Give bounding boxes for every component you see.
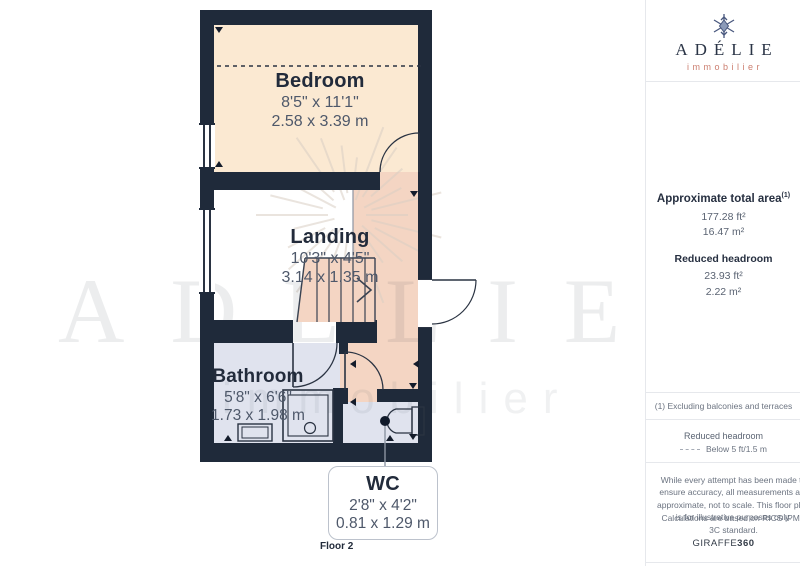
area-summary: Approximate total area(1) 177.28 ft² 16.… — [646, 192, 800, 298]
brand-name: ADÉLIE — [653, 40, 800, 60]
plan-marker — [224, 431, 232, 441]
giraffe360-logo: GIRAFFE360 — [646, 538, 800, 549]
balcony-footnote: (1) Excluding balconies and terraces — [646, 401, 800, 411]
sidebar-divider — [646, 562, 800, 563]
wc-dim-ft: 2'8" x 4'2" — [329, 498, 437, 514]
total-area-ft: 177.28 ft² — [646, 212, 800, 223]
landing-dim-ft: 10'3" x 4'5" — [240, 251, 420, 268]
wc-dim-m: 0.81 x 1.29 m — [329, 516, 437, 532]
reduced-area-ft: 23.93 ft² — [646, 271, 800, 282]
landing-name: Landing — [240, 226, 420, 249]
standard-text: Calculations are based on RICS IPMS 3C s… — [646, 512, 800, 537]
legend-entry: Below 5 ft/1.5 m — [646, 444, 800, 454]
sidebar-divider — [646, 81, 800, 82]
total-area-heading: Approximate total area(1) — [646, 192, 800, 205]
plan-marker — [215, 27, 223, 37]
plan-marker — [215, 157, 223, 167]
plan-marker — [409, 383, 417, 393]
snowflake-icon — [711, 12, 737, 40]
landing-label: Landing 10'3" x 4'5" 3.14 x 1.35 m — [240, 226, 420, 287]
bedroom-dim-ft: 8'5" x 11'1" — [230, 95, 410, 112]
reduced-headroom-heading: Reduced headroom — [646, 253, 800, 265]
floorplan-page: ADÉLIE immobilier — [0, 0, 800, 566]
bathroom-label: Bathroom 5'8" x 6'6" 1.73 x 1.98 m — [168, 366, 348, 425]
floor-label: Floor 2 — [320, 541, 353, 552]
bathroom-name: Bathroom — [168, 366, 348, 388]
dashed-line-sample — [680, 449, 700, 450]
brand-tagline: immobilier — [649, 62, 800, 72]
sidebar-divider — [646, 419, 800, 420]
wc-name: WC — [329, 473, 437, 496]
bathroom-dim-m: 1.73 x 1.98 m — [168, 408, 348, 424]
plan-marker — [409, 434, 417, 444]
wc-callout: WC 2'8" x 4'2" 0.81 x 1.29 m — [328, 466, 438, 540]
info-sidebar: ADÉLIE immobilier Approximate total area… — [645, 0, 800, 566]
legend-title: Reduced headroom — [646, 431, 800, 441]
agency-logo: ADÉLIE immobilier — [646, 12, 800, 72]
footnote-ref: (1) — [782, 192, 791, 199]
plan-marker — [410, 191, 418, 201]
reduced-area-m: 2.22 m² — [646, 287, 800, 298]
bathroom-dim-ft: 5'8" x 6'6" — [168, 390, 348, 406]
plan-marker — [409, 360, 419, 368]
sidebar-divider — [646, 392, 800, 393]
legend-label: Below 5 ft/1.5 m — [706, 444, 767, 454]
bedroom-dim-m: 2.58 x 3.39 m — [230, 114, 410, 131]
total-area-m: 16.47 m² — [646, 227, 800, 238]
bedroom-label: Bedroom 8'5" x 11'1" 2.58 x 3.39 m — [230, 70, 410, 131]
sidebar-divider — [646, 462, 800, 463]
plan-marker — [386, 431, 394, 441]
landing-dim-m: 3.14 x 1.35 m — [240, 270, 420, 287]
bedroom-name: Bedroom — [230, 70, 410, 93]
